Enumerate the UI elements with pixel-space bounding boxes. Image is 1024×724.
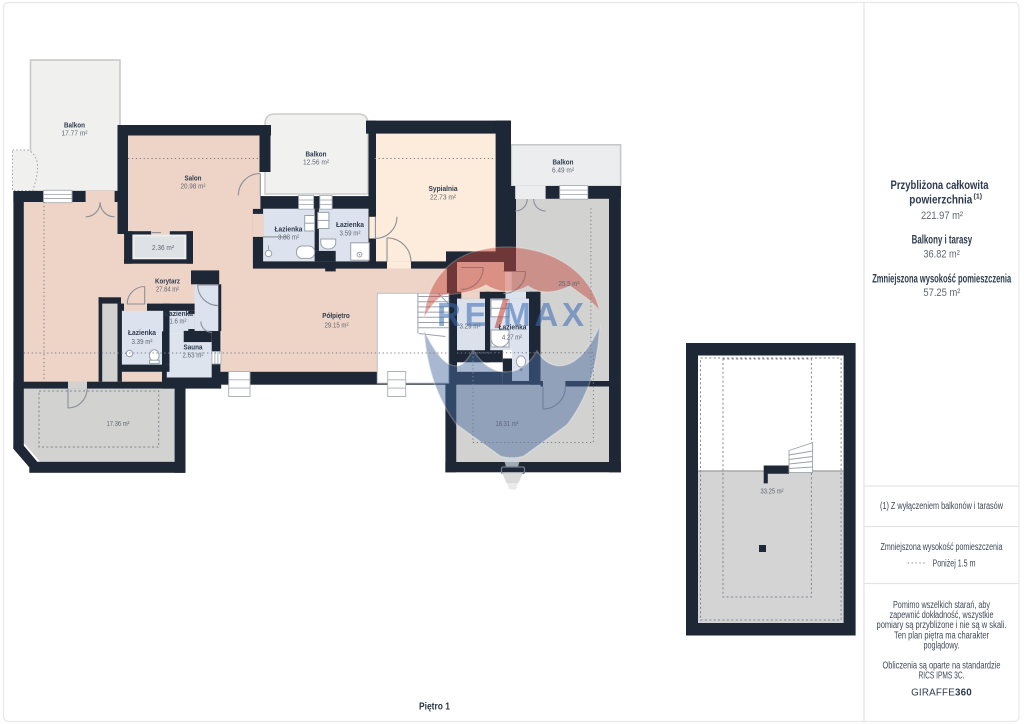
svg-text:1.6 m²: 1.6 m² — [170, 319, 188, 326]
svg-text:4.27 m²: 4.27 m² — [502, 335, 523, 342]
svg-text:27.84 m²: 27.84 m² — [156, 287, 180, 294]
svg-text:57.25 m²: 57.25 m² — [923, 287, 960, 299]
svg-text:Łazienka: Łazienka — [336, 220, 365, 229]
svg-text:Balkon: Balkon — [64, 121, 85, 130]
svg-text:Sypialnia: Sypialnia — [429, 184, 459, 193]
svg-text:RICS IPMS 3C.: RICS IPMS 3C. — [919, 671, 965, 682]
svg-text:Łazienka: Łazienka — [275, 225, 304, 234]
svg-text:2.63 m²: 2.63 m² — [183, 353, 205, 360]
svg-text:Balkon: Balkon — [306, 150, 327, 159]
svg-text:poglądowy.: poglądowy. — [924, 641, 960, 652]
svg-text:Korytarz: Korytarz — [155, 277, 180, 286]
svg-text:12.56 m²: 12.56 m² — [303, 160, 330, 167]
svg-text:Sauna: Sauna — [184, 343, 204, 352]
svg-text:Przybliżona całkowita: Przybliżona całkowita — [891, 180, 989, 192]
svg-text:Balkon: Balkon — [553, 157, 574, 166]
svg-text:Zmniejszona wysokość pomieszcz: Zmniejszona wysokość pomieszczenia — [881, 542, 1003, 553]
svg-text:17.36 m²: 17.36 m² — [107, 421, 131, 428]
svg-text:25.5 m²: 25.5 m² — [559, 281, 581, 288]
svg-text:Poniżej 1.5 m: Poniżej 1.5 m — [933, 559, 976, 570]
svg-text:(1) Z wyłączeniem balkonów i t: (1) Z wyłączeniem balkonów i tarasów — [880, 501, 1004, 512]
svg-text:6.49 m²: 6.49 m² — [552, 167, 575, 174]
svg-text:Łazienka: Łazienka — [128, 328, 157, 337]
svg-text:18.31 m²: 18.31 m² — [496, 421, 520, 428]
svg-text:20.98 m²: 20.98 m² — [181, 184, 207, 191]
svg-text:GIRAFFE360: GIRAFFE360 — [911, 688, 972, 699]
svg-text:36.82 m²: 36.82 m² — [923, 249, 960, 261]
svg-text:Zmniejszona wysokość pomieszcz: Zmniejszona wysokość pomieszczenia — [872, 274, 1011, 286]
svg-text:17.77 m²: 17.77 m² — [62, 131, 89, 138]
svg-text:33.25 m²: 33.25 m² — [761, 489, 785, 496]
svg-text:3.39 m²: 3.39 m² — [132, 339, 154, 346]
svg-text:Piętro 1: Piętro 1 — [419, 701, 450, 713]
svg-text:Balkony i tarasy: Balkony i tarasy — [912, 235, 973, 247]
svg-text:Łazienka: Łazienka — [499, 323, 528, 332]
svg-text:3.59 m²: 3.59 m² — [340, 231, 362, 238]
svg-text:Łazienka: Łazienka — [165, 309, 194, 318]
svg-text:3.88 m²: 3.88 m² — [278, 235, 300, 242]
svg-text:pomiary są przybliżone i nie s: pomiary są przybliżone i nie są w skali. — [877, 620, 1007, 631]
svg-text:3.29 m²: 3.29 m² — [460, 324, 482, 331]
svg-text:29.15 m²: 29.15 m² — [325, 323, 350, 330]
svg-text:powierzchnia: powierzchnia — [909, 195, 973, 207]
svg-text:221.97 m²: 221.97 m² — [921, 210, 963, 222]
svg-text:22.73 m²: 22.73 m² — [430, 194, 457, 201]
svg-text:2.36 m²: 2.36 m² — [152, 245, 175, 252]
svg-text:(1): (1) — [974, 194, 983, 201]
svg-text:Salon: Salon — [185, 174, 202, 183]
svg-text:Półpiętro: Półpiętro — [322, 311, 350, 320]
